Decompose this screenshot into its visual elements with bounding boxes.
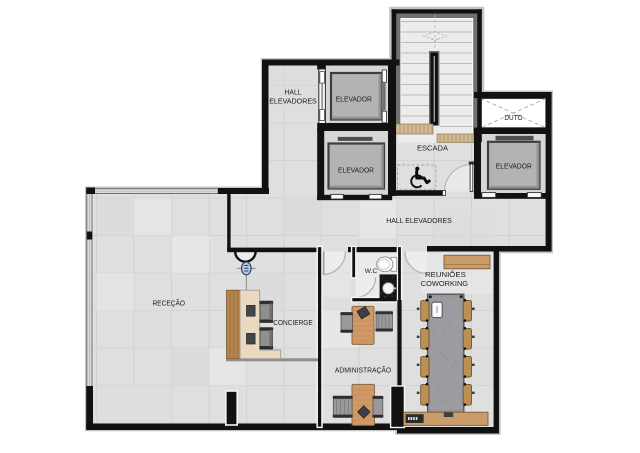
- svg-text:W.C: W.C: [365, 268, 378, 275]
- svg-text:ELEVADOR: ELEVADOR: [496, 164, 532, 171]
- svg-text:CONCIERGE: CONCIERGE: [273, 318, 313, 327]
- svg-text:ELEVADOR: ELEVADOR: [336, 97, 372, 104]
- svg-text:ELEVADOR: ELEVADOR: [338, 167, 374, 174]
- svg-text:DUTO: DUTO: [504, 113, 523, 122]
- svg-text:HALL ELEVADORES: HALL ELEVADORES: [386, 216, 452, 225]
- svg-text:ADMINISTRAÇÃO: ADMINISTRAÇÃO: [335, 366, 392, 375]
- svg-text:ESCADA: ESCADA: [417, 144, 448, 153]
- svg-text:ELEVADORES: ELEVADORES: [269, 97, 317, 106]
- svg-text:RECEÇÃO: RECEÇÃO: [152, 298, 185, 307]
- svg-text:COWORKING: COWORKING: [421, 279, 469, 288]
- svg-text:HALL: HALL: [285, 88, 302, 97]
